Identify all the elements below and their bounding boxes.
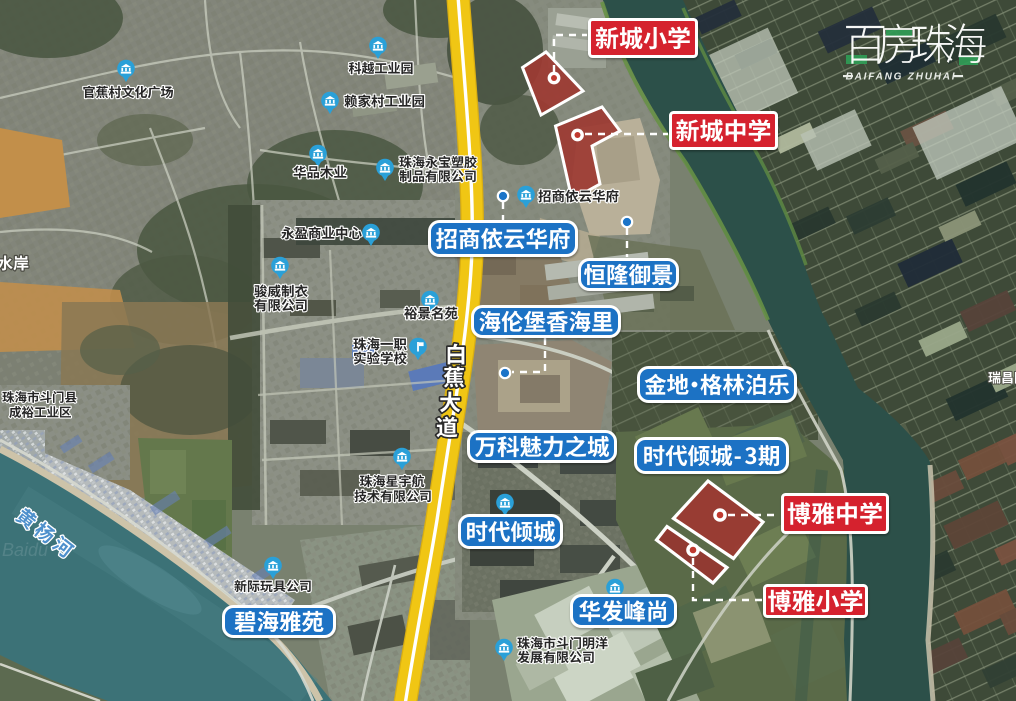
svg-text:BAIFANG ZHUHAI: BAIFANG ZHUHAI [846, 72, 957, 83]
svg-text:Baidu: Baidu [2, 540, 48, 560]
